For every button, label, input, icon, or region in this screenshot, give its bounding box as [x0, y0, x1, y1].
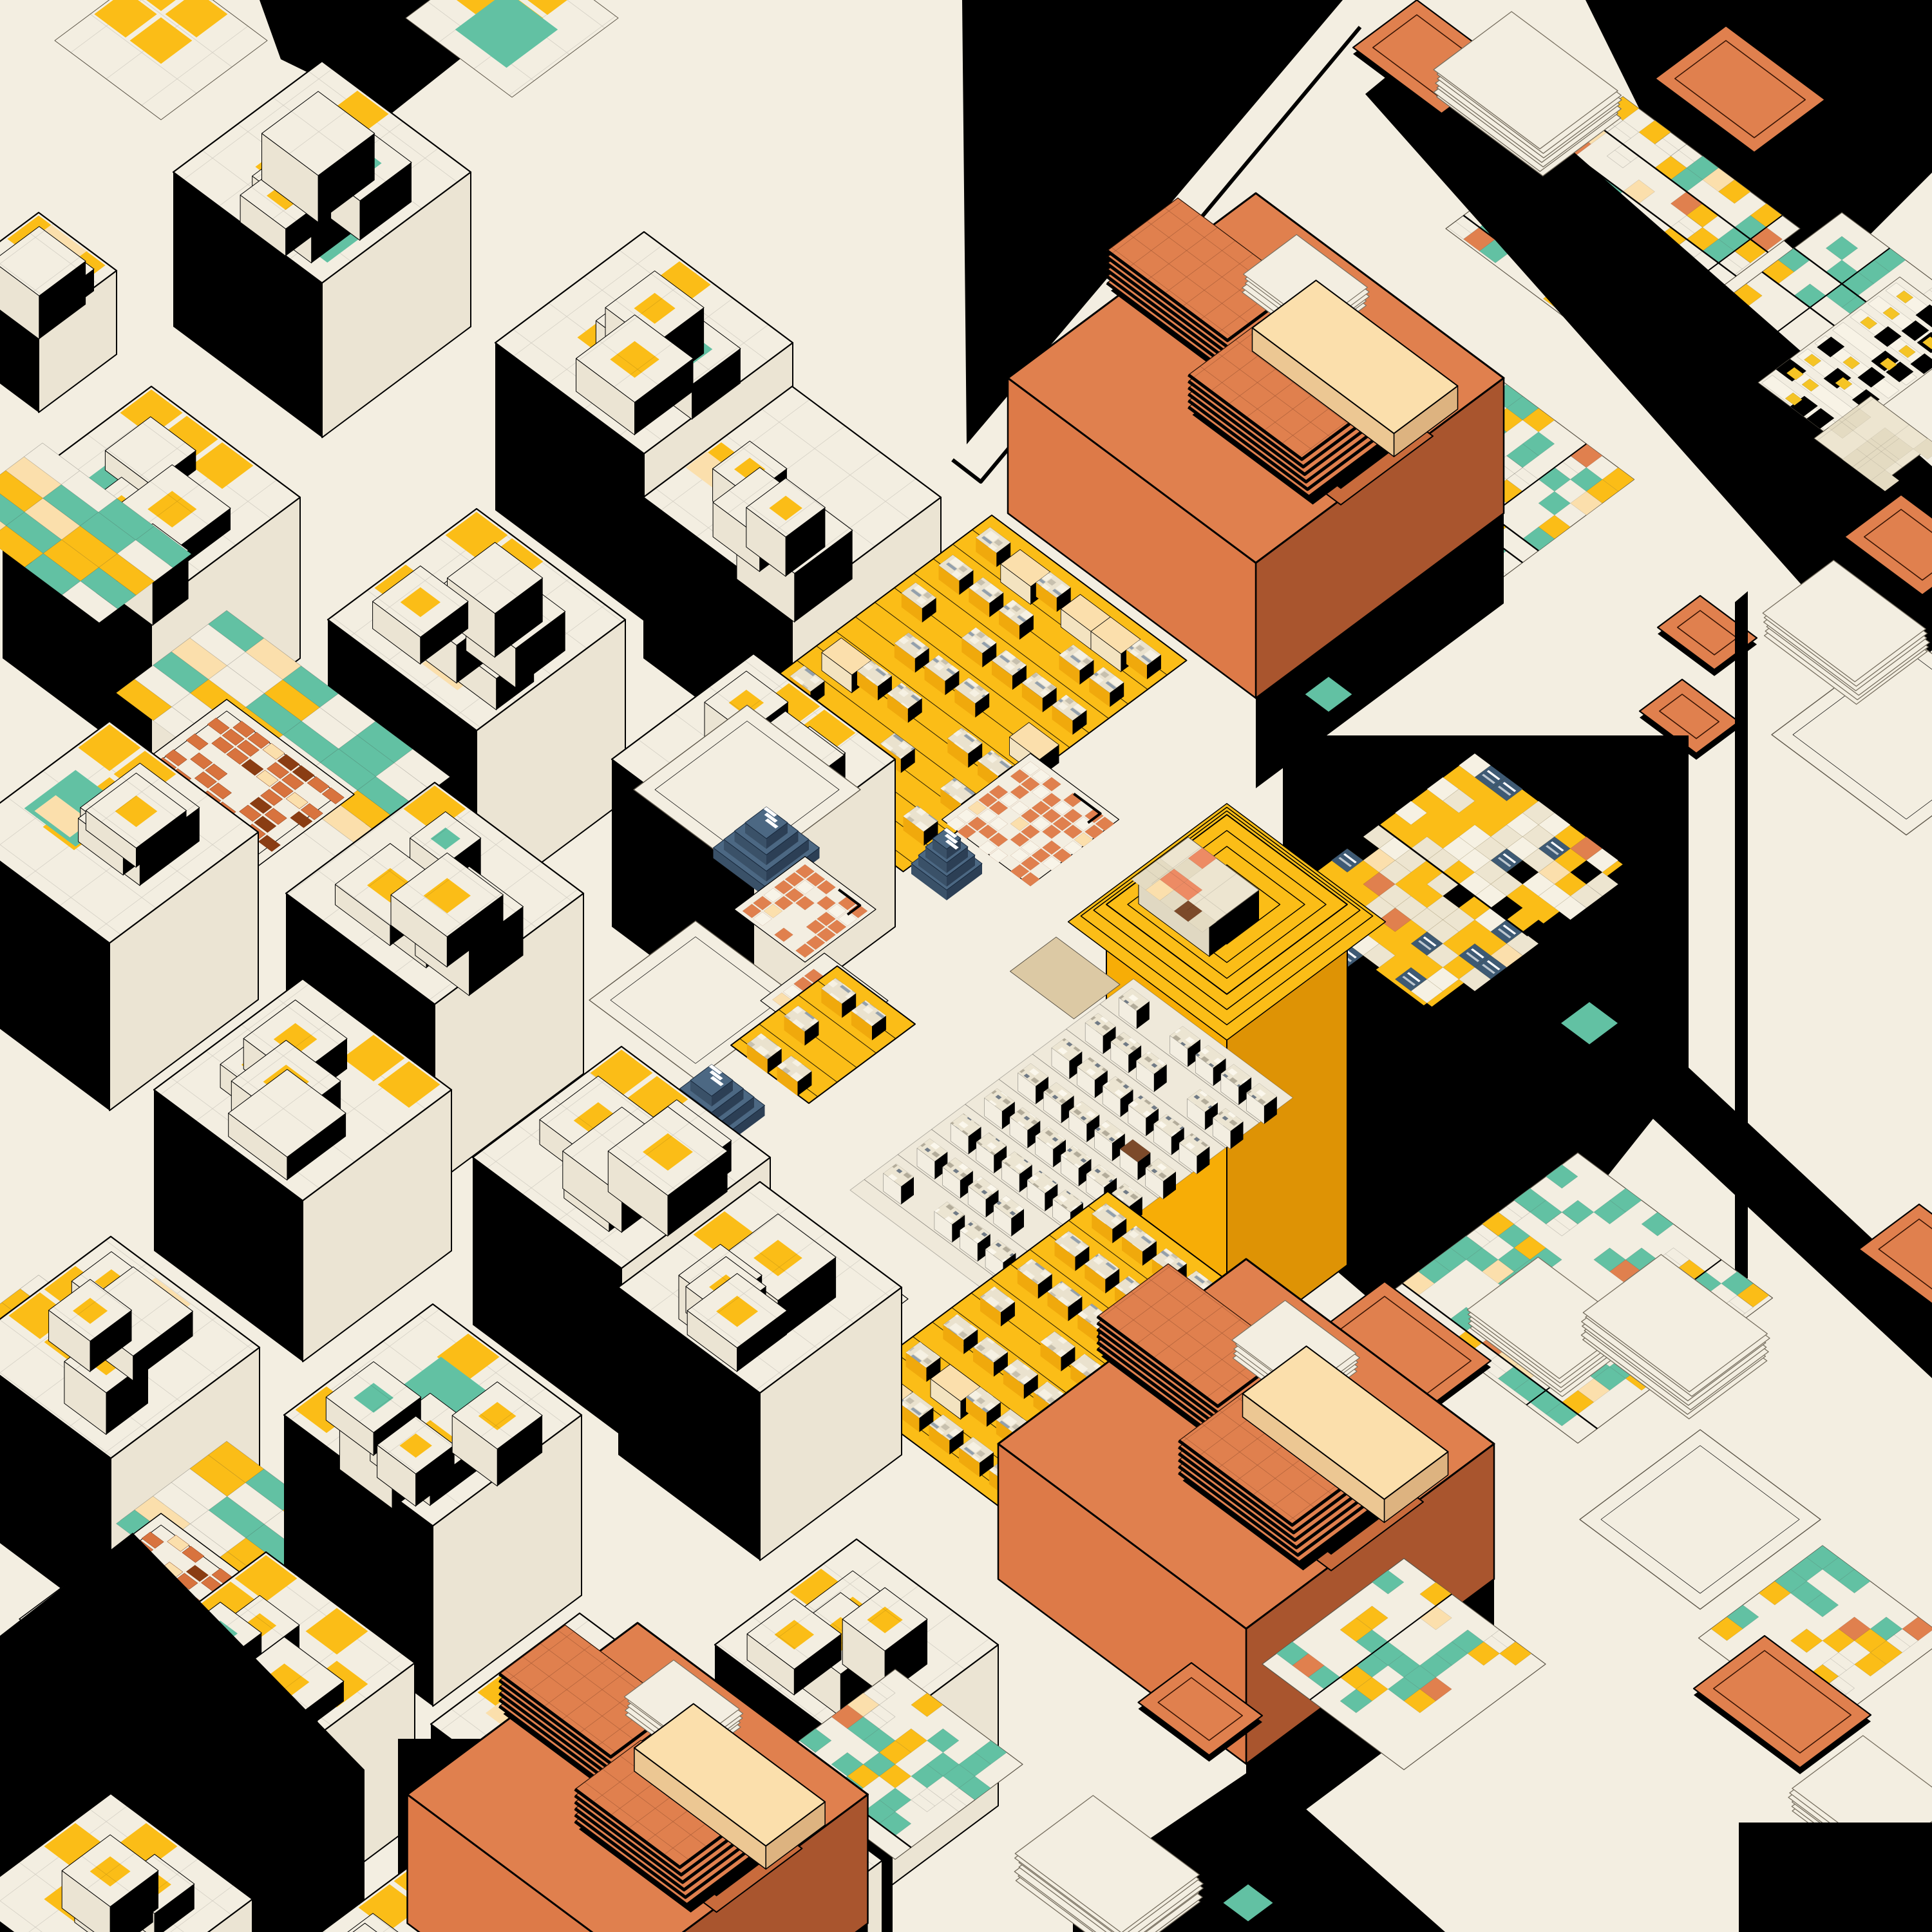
block-building [0, 213, 117, 412]
isometric-generative-artwork [0, 0, 1932, 1932]
sheet-stack [1014, 1795, 1203, 1932]
block-building [173, 61, 471, 437]
artwork-frame [0, 0, 1932, 1932]
shadow-band [1739, 1823, 1932, 1932]
roof-patch [55, 0, 267, 120]
